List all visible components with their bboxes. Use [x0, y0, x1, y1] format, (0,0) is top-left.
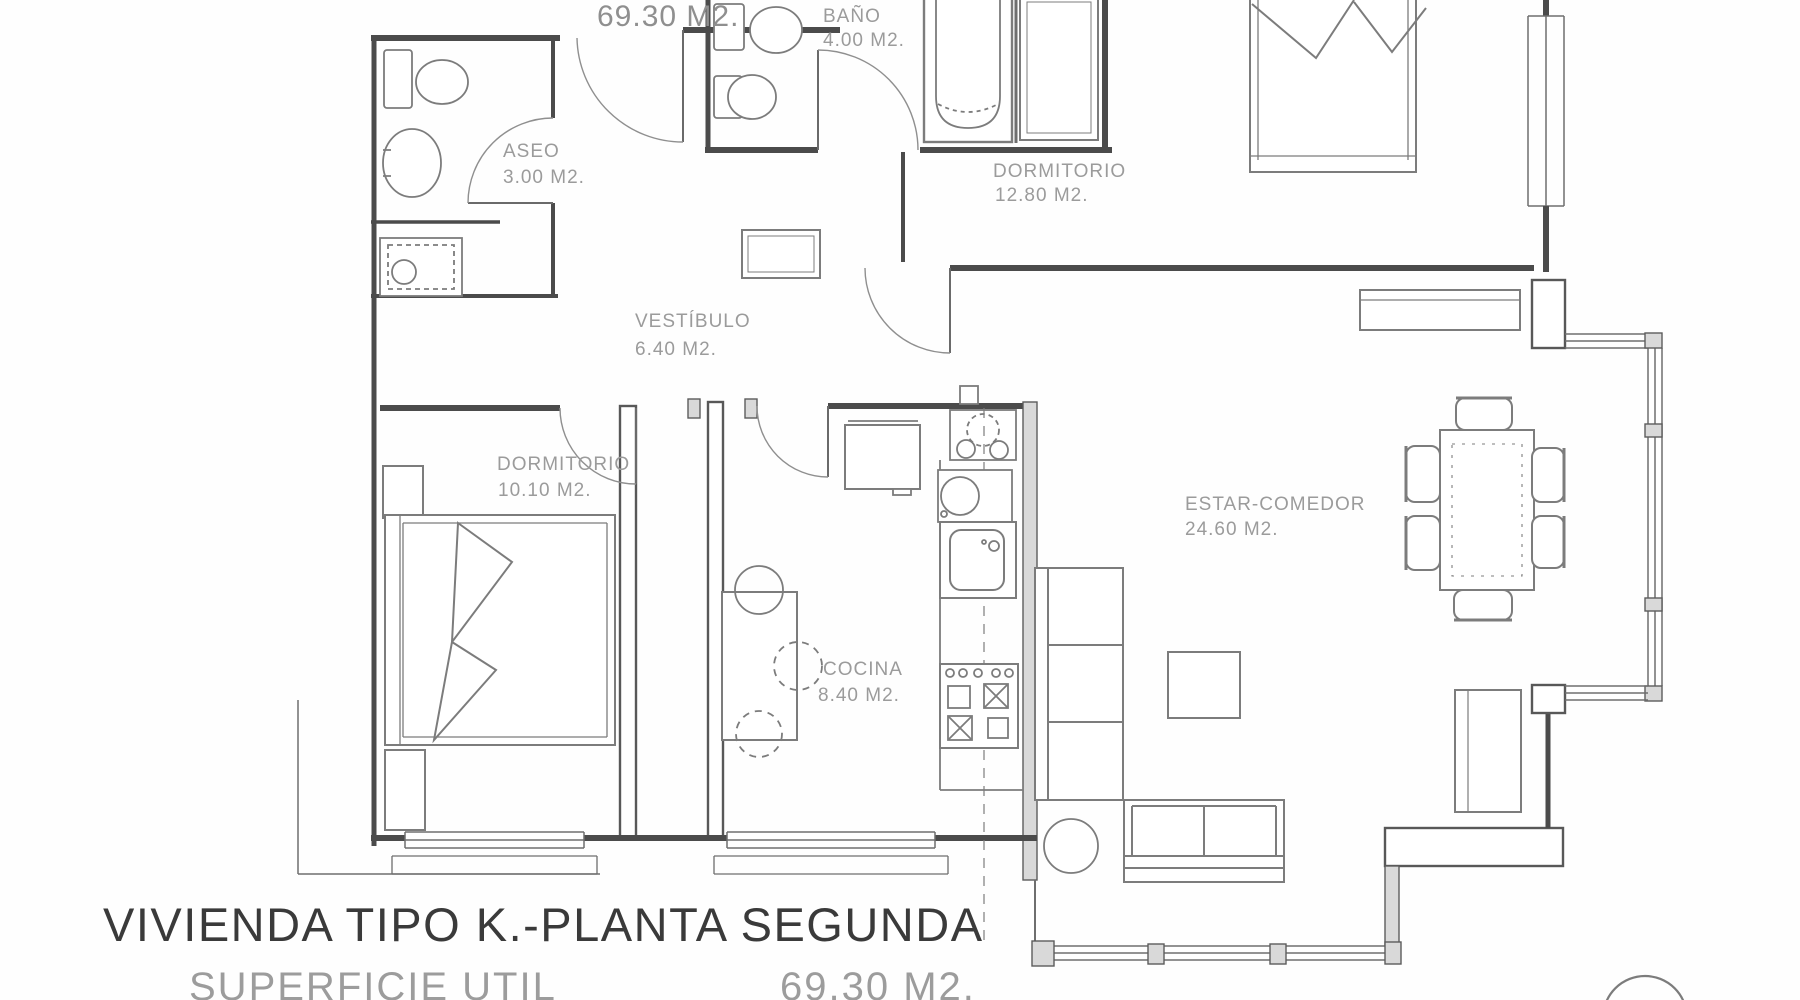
bathtub-fixture: [924, 0, 1012, 142]
room-area-aseo: 3.00 M2.: [503, 167, 585, 188]
dining-set: [1406, 398, 1564, 620]
floor-plan-sheet: 69.30 M2. ASEO 3.00 M2. BAÑO 4.00 M2. DO…: [0, 0, 1800, 1000]
title-block: VIVIENDA TIPO K.-PLANTA SEGUNDA SUPERFIC…: [103, 898, 984, 1000]
toilet-fixture: [384, 50, 412, 108]
double-bed: [1250, 0, 1426, 172]
coffee-table: [1168, 652, 1240, 718]
console-cabinet: [742, 230, 820, 278]
nightstand: [385, 750, 425, 830]
dining-chair: [1532, 516, 1564, 568]
room-label-vestibulo: VESTÍBULO: [635, 311, 751, 332]
room-area-bano: 4.00 M2.: [823, 30, 905, 51]
dining-chair: [1454, 590, 1512, 620]
room-area-dormitorio2: 10.10 M2.: [498, 480, 592, 501]
partial-circle-symbol: [1603, 976, 1687, 1000]
floor-plan-drawing: 69.30 M2. ASEO 3.00 M2. BAÑO 4.00 M2. DO…: [0, 0, 1800, 1000]
dining-chair: [1532, 448, 1564, 502]
plan-title: VIVIENDA TIPO K.-PLANTA SEGUNDA: [103, 898, 984, 951]
sideboard: [1455, 690, 1521, 812]
footer-surface-value: 69.30 M2.: [780, 965, 976, 1000]
dining-chair: [1406, 446, 1440, 502]
room-area-estar-comedor: 24.60 M2.: [1185, 519, 1279, 540]
room-area-vestibulo: 6.40 M2.: [635, 339, 717, 360]
round-table: [1044, 819, 1098, 873]
room-area-cocina: 8.40 M2.: [818, 685, 900, 706]
single-bed: [383, 466, 615, 830]
dining-chair: [1456, 398, 1512, 430]
closet: [1020, 0, 1098, 140]
room-label-cocina: COCINA: [823, 659, 903, 680]
room-label-aseo: ASEO: [503, 141, 560, 162]
sofa: [1035, 568, 1123, 800]
dining-table: [1440, 430, 1534, 590]
room-area-dormitorio1: 12.80 M2.: [995, 185, 1089, 206]
room-label-bano: BAÑO: [823, 5, 881, 27]
entry-door-swing-arc: [577, 38, 683, 142]
room-label-dormitorio2: DORMITORIO: [497, 454, 630, 475]
room-label-dormitorio1: DORMITORIO: [993, 161, 1126, 182]
fridge: [845, 425, 920, 489]
room-label-estar-comedor: ESTAR-COMEDOR: [1185, 494, 1365, 515]
washing-machine: [938, 470, 1012, 522]
sofa: [1124, 800, 1284, 882]
nightstand: [383, 466, 423, 518]
dining-chair: [1406, 516, 1440, 570]
washbasin-fixture: [383, 129, 441, 197]
footer-surface-label: SUPERFICIE UTIL: [189, 965, 557, 1000]
top-area-note: 69.30 M2.: [597, 0, 739, 33]
boiler-fixture: [950, 410, 1016, 460]
shelf: [1360, 290, 1520, 330]
